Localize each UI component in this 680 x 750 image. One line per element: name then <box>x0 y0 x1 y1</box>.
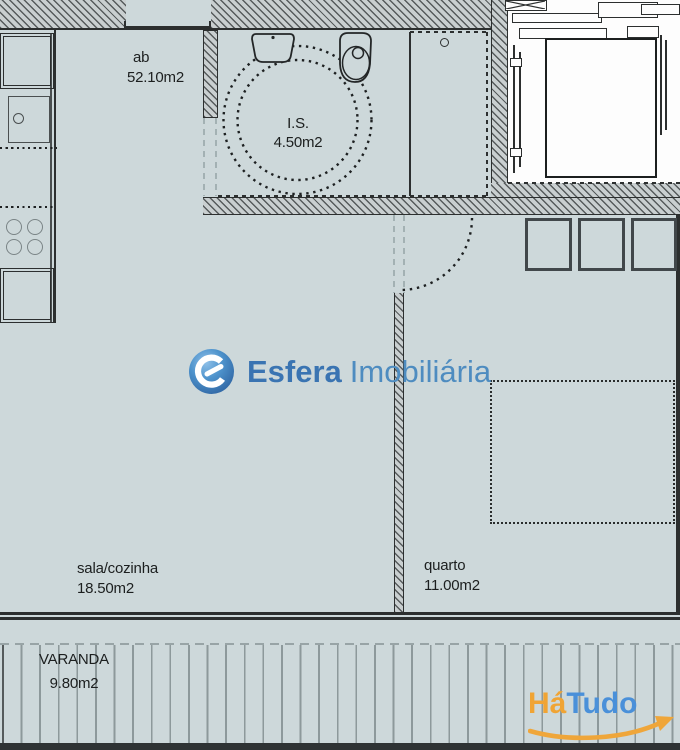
esfera-wordmark: EsferaImobiliária <box>247 355 491 389</box>
room-name: I.S. <box>255 114 341 133</box>
esfera-brand-text: Esfera <box>247 354 342 389</box>
floor-plan: ab 52.10m2 I.S. 4.50m2 sala/cozinha 18.5… <box>0 0 680 750</box>
esfera-suffix-text: Imobiliária <box>350 354 491 389</box>
room-label-total: ab 52.10m2 <box>127 48 184 88</box>
door-swing-icon <box>400 218 472 290</box>
room-name: quarto <box>424 556 480 576</box>
room-name: ab <box>127 48 184 68</box>
room-area: 4.50m2 <box>255 133 341 152</box>
hatudo-part2-text: Tudo <box>566 687 637 720</box>
room-area: 9.80m2 <box>30 672 118 696</box>
esfera-sphere-icon <box>187 347 236 396</box>
room-area: 52.10m2 <box>127 68 184 88</box>
toilet-icon <box>340 33 371 82</box>
washbasin-icon <box>252 34 294 62</box>
room-name: VARANDA <box>30 648 118 672</box>
room-label-living: sala/cozinha 18.50m2 <box>77 559 158 599</box>
esfera-logo: EsferaImobiliária <box>187 347 491 396</box>
hatudo-part1-text: Há <box>528 687 566 720</box>
room-name: sala/cozinha <box>77 559 158 579</box>
room-label-balcony: VARANDA 9.80m2 <box>30 648 118 696</box>
room-label-bathroom: I.S. 4.50m2 <box>255 114 341 152</box>
room-area: 18.50m2 <box>77 579 158 599</box>
hatudo-logo: HáTudo <box>528 689 676 743</box>
room-area: 11.00m2 <box>424 576 480 596</box>
room-label-bedroom: quarto 11.00m2 <box>424 556 480 596</box>
